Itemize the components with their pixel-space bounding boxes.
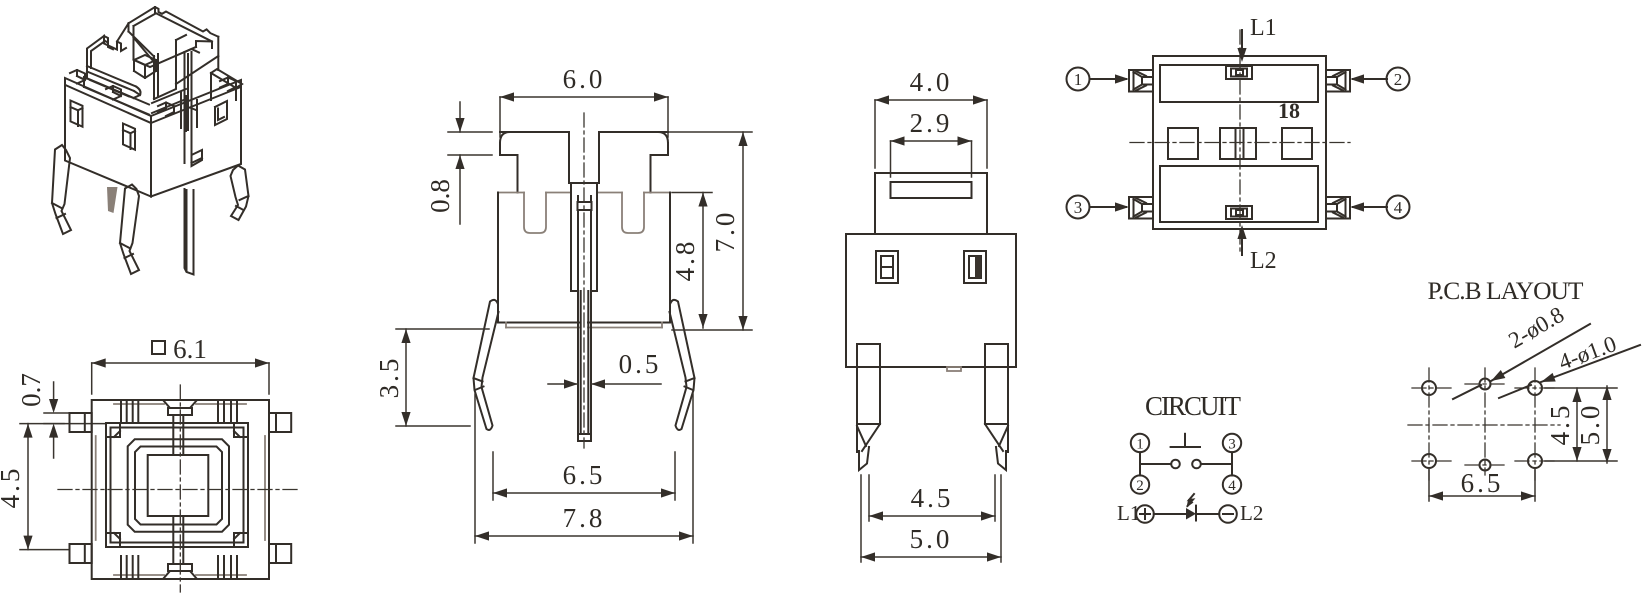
svg-text:L2: L2 (1240, 501, 1263, 525)
svg-text:4.5: 4.5 (0, 466, 25, 509)
svg-text:3: 3 (1228, 436, 1236, 452)
svg-text:7.8: 7.8 (563, 503, 606, 533)
svg-text:3: 3 (1074, 198, 1083, 217)
svg-text:2.9: 2.9 (910, 108, 953, 138)
svg-text:L1: L1 (1250, 15, 1277, 41)
svg-text:1: 1 (1136, 436, 1144, 452)
svg-text:4.5: 4.5 (911, 483, 954, 513)
svg-text:0.7: 0.7 (16, 373, 46, 407)
svg-text:18: 18 (1278, 98, 1300, 123)
svg-text:1: 1 (1074, 70, 1083, 89)
svg-text:7.0: 7.0 (710, 210, 740, 253)
svg-text:6.0: 6.0 (563, 64, 606, 94)
svg-text:4: 4 (1228, 478, 1236, 494)
svg-text:5.0: 5.0 (910, 524, 953, 554)
svg-text:4: 4 (1394, 198, 1403, 217)
svg-text:6.5: 6.5 (1461, 468, 1504, 498)
svg-text:3.5: 3.5 (374, 356, 404, 399)
svg-text:4.8: 4.8 (670, 239, 700, 282)
svg-text:4.0: 4.0 (910, 67, 953, 97)
svg-text:2-ø0.8: 2-ø0.8 (1504, 302, 1568, 353)
svg-text:6.1: 6.1 (173, 334, 207, 364)
svg-text:0.8: 0.8 (425, 179, 455, 213)
svg-text:5.0: 5.0 (1575, 403, 1605, 446)
svg-text:6.5: 6.5 (563, 460, 606, 490)
svg-text:2: 2 (1136, 478, 1144, 494)
svg-text:4.5: 4.5 (1545, 403, 1575, 446)
svg-text:P.C.B LAYOUT: P.C.B LAYOUT (1428, 276, 1584, 305)
svg-text:2: 2 (1394, 70, 1403, 89)
svg-text:L2: L2 (1250, 248, 1277, 274)
svg-text:CIRCUIT: CIRCUIT (1145, 391, 1242, 421)
svg-text:0.5: 0.5 (619, 349, 662, 379)
